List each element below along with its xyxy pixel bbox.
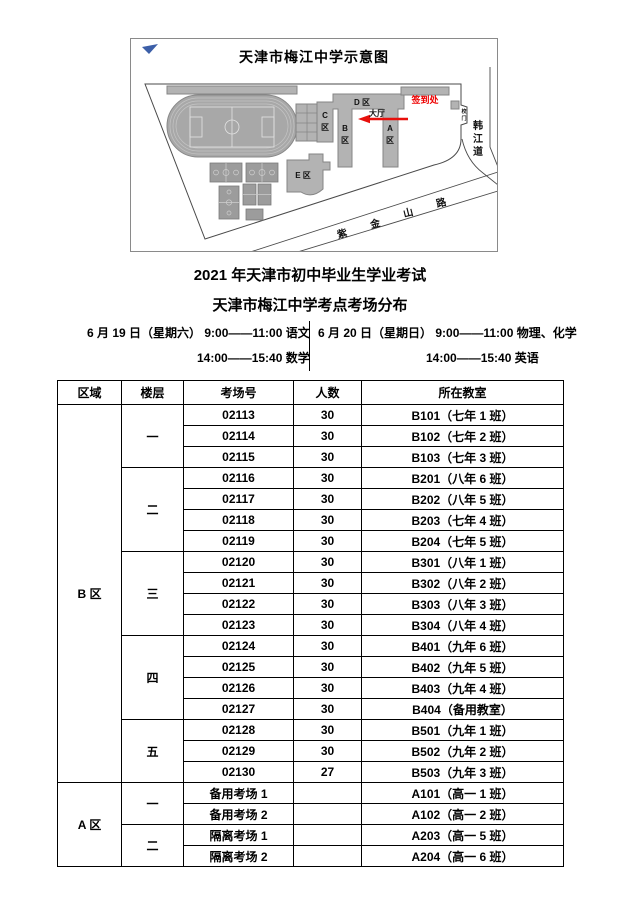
school-map-drawing: D 区 C 区 B 区 A 区 E 区 大厅 签到处 校 门 韩 江 道 紫 金… xyxy=(131,39,497,251)
stand-building xyxy=(167,86,297,94)
zone-c-label: 区 xyxy=(321,123,329,132)
checkin-label: 签到处 xyxy=(410,94,439,105)
gate-label: 门 xyxy=(461,115,466,122)
exam-table-body: B 区一0211330B101（七年 1 班）0211430B102（七年 2 … xyxy=(58,405,564,867)
room-number-cell: 02124 xyxy=(184,636,294,657)
table-row: A 区一备用考场 1A101（高一 1 班） xyxy=(58,783,564,804)
zone-a-label: A xyxy=(387,124,393,133)
count-cell: 30 xyxy=(294,405,362,426)
floor-cell: 一 xyxy=(122,405,184,468)
header-region: 区域 xyxy=(58,381,122,405)
header-floor: 楼层 xyxy=(122,381,184,405)
count-cell: 30 xyxy=(294,426,362,447)
classroom-cell: B102（七年 2 班） xyxy=(362,426,564,447)
table-row: 二0211630B201（八年 6 班） xyxy=(58,468,564,489)
classroom-cell: A203（高一 5 班） xyxy=(362,825,564,846)
zone-d-label: D 区 xyxy=(354,98,370,107)
classroom-cell: B203（七年 4 班） xyxy=(362,510,564,531)
zone-c-label: C xyxy=(322,111,328,120)
classroom-cell: B202（八年 5 班） xyxy=(362,489,564,510)
header-classroom: 所在教室 xyxy=(362,381,564,405)
exam-room-table: 区域 楼层 考场号 人数 所在教室 B 区一0211330B101（七年 1 班… xyxy=(57,380,564,867)
south-road-label: 金 xyxy=(368,216,383,232)
count-cell xyxy=(294,804,362,825)
school-map: D 区 C 区 B 区 A 区 E 区 大厅 签到处 校 门 韩 江 道 紫 金… xyxy=(130,38,498,252)
classroom-cell: B302（八年 2 班） xyxy=(362,573,564,594)
page-subtitle: 天津市梅江中学考点考场分布 xyxy=(57,294,563,315)
room-number-cell: 02128 xyxy=(184,720,294,741)
classroom-cell: B403（九年 4 班） xyxy=(362,678,564,699)
floor-cell: 五 xyxy=(122,720,184,783)
south-road-edge-2 xyxy=(291,191,497,251)
map-title: 天津市梅江中学示意图 xyxy=(131,47,497,67)
classroom-cell: A102（高一 2 班） xyxy=(362,804,564,825)
basketball-court-vertical xyxy=(219,186,239,219)
classroom-cell: B201（八年 6 班） xyxy=(362,468,564,489)
room-number-cell: 02116 xyxy=(184,468,294,489)
schedule-day2: 6 月 20 日（星期日） 9:00——11:00 物理、化学 14:00——1… xyxy=(309,321,563,371)
south-road-label: 山 xyxy=(402,205,415,220)
count-cell: 30 xyxy=(294,447,362,468)
count-cell: 30 xyxy=(294,678,362,699)
classroom-cell: B301（八年 1 班） xyxy=(362,552,564,573)
classroom-cell: B101（七年 1 班） xyxy=(362,405,564,426)
classroom-cell: B502（九年 2 班） xyxy=(362,741,564,762)
count-cell: 30 xyxy=(294,720,362,741)
zone-b-label: 区 xyxy=(341,136,349,145)
classroom-cell: B103（七年 3 班） xyxy=(362,447,564,468)
small-court xyxy=(246,209,263,220)
room-number-cell: 02114 xyxy=(184,426,294,447)
classroom-cell: B503（九年 3 班） xyxy=(362,762,564,783)
south-road-label: 紫 xyxy=(336,226,349,241)
small-court xyxy=(258,184,271,205)
count-cell: 30 xyxy=(294,510,362,531)
classroom-cell: B501（九年 1 班） xyxy=(362,720,564,741)
table-row: 三0212030B301（八年 1 班） xyxy=(58,552,564,573)
classroom-cell: B303（八年 3 班） xyxy=(362,594,564,615)
count-cell: 30 xyxy=(294,573,362,594)
count-cell: 30 xyxy=(294,741,362,762)
count-cell xyxy=(294,825,362,846)
table-row: B 区一0211330B101（七年 1 班） xyxy=(58,405,564,426)
schedule-day1-afternoon: 14:00——15:40 数学 xyxy=(57,346,309,371)
schedule-day1: 6 月 19 日（星期六） 9:00——11:00 语文 14:00——15:4… xyxy=(57,321,309,371)
classroom-cell: B204（七年 5 班） xyxy=(362,531,564,552)
floor-cell: 二 xyxy=(122,825,184,867)
region-cell: A 区 xyxy=(58,783,122,867)
header-count: 人数 xyxy=(294,381,362,405)
schedule-day2-afternoon: 14:00——15:40 英语 xyxy=(310,346,563,371)
count-cell: 30 xyxy=(294,615,362,636)
guard-box xyxy=(451,101,459,109)
classroom-cell: B401（九年 6 班） xyxy=(362,636,564,657)
zone-a-label: 区 xyxy=(386,136,394,145)
room-number-cell: 隔离考场 1 xyxy=(184,825,294,846)
room-number-cell: 备用考场 2 xyxy=(184,804,294,825)
room-number-cell: 备用考场 1 xyxy=(184,783,294,804)
count-cell: 30 xyxy=(294,552,362,573)
count-cell: 30 xyxy=(294,699,362,720)
schedule-day2-morning: 6 月 20 日（星期日） 9:00——11:00 物理、化学 xyxy=(310,321,563,346)
count-cell: 30 xyxy=(294,657,362,678)
classroom-cell: B304（八年 4 班） xyxy=(362,615,564,636)
room-number-cell: 02119 xyxy=(184,531,294,552)
exam-notice-page: D 区 C 区 B 区 A 区 E 区 大厅 签到处 校 门 韩 江 道 紫 金… xyxy=(0,0,621,901)
east-road-label: 江 xyxy=(473,132,483,145)
count-cell: 30 xyxy=(294,636,362,657)
classroom-cell: B404（备用教室） xyxy=(362,699,564,720)
table-header-row: 区域 楼层 考场号 人数 所在教室 xyxy=(58,381,564,405)
table-row: 五0212830B501（九年 1 班） xyxy=(58,720,564,741)
table-row: 四0212430B401（九年 6 班） xyxy=(58,636,564,657)
checkin-building xyxy=(401,87,449,95)
south-road-edge-1 xyxy=(241,172,497,251)
room-number-cell: 02120 xyxy=(184,552,294,573)
page-title: 2021 年天津市初中毕业生学业考试 xyxy=(57,264,563,285)
east-road-edge xyxy=(490,67,497,167)
zone-b-label: B xyxy=(342,124,348,133)
header-room-number: 考场号 xyxy=(184,381,294,405)
floor-cell: 三 xyxy=(122,552,184,636)
count-cell: 30 xyxy=(294,594,362,615)
basketball-court xyxy=(246,163,278,182)
east-road-label: 道 xyxy=(473,145,483,158)
room-number-cell: 02115 xyxy=(184,447,294,468)
room-number-cell: 02129 xyxy=(184,741,294,762)
count-cell xyxy=(294,846,362,867)
count-cell: 30 xyxy=(294,531,362,552)
east-road-label: 韩 xyxy=(473,119,483,132)
room-number-cell: 隔离考场 2 xyxy=(184,846,294,867)
south-road-label: 路 xyxy=(435,195,449,210)
schedule-day1-morning: 6 月 19 日（星期六） 9:00——11:00 语文 xyxy=(57,321,309,346)
region-cell: B 区 xyxy=(58,405,122,783)
zone-e-label: E 区 xyxy=(295,171,311,180)
table-row: 二隔离考场 1A203（高一 5 班） xyxy=(58,825,564,846)
room-number-cell: 02125 xyxy=(184,657,294,678)
count-cell: 30 xyxy=(294,489,362,510)
floor-cell: 一 xyxy=(122,783,184,825)
room-number-cell: 02118 xyxy=(184,510,294,531)
exam-schedule: 6 月 19 日（星期六） 9:00——11:00 语文 14:00——15:4… xyxy=(57,321,563,371)
basketball-court xyxy=(210,163,242,182)
hall-label: 大厅 xyxy=(369,108,385,118)
floor-cell: 四 xyxy=(122,636,184,720)
classroom-cell: A204（高一 6 班） xyxy=(362,846,564,867)
room-number-cell: 02123 xyxy=(184,615,294,636)
room-number-cell: 02117 xyxy=(184,489,294,510)
classroom-cell: B402（九年 5 班） xyxy=(362,657,564,678)
count-cell: 30 xyxy=(294,468,362,489)
room-number-cell: 02126 xyxy=(184,678,294,699)
classroom-cell: A101（高一 1 班） xyxy=(362,783,564,804)
room-number-cell: 02113 xyxy=(184,405,294,426)
small-court xyxy=(243,184,256,205)
room-number-cell: 02130 xyxy=(184,762,294,783)
count-cell xyxy=(294,783,362,804)
count-cell: 27 xyxy=(294,762,362,783)
room-number-cell: 02121 xyxy=(184,573,294,594)
room-number-cell: 02127 xyxy=(184,699,294,720)
room-number-cell: 02122 xyxy=(184,594,294,615)
floor-cell: 二 xyxy=(122,468,184,552)
